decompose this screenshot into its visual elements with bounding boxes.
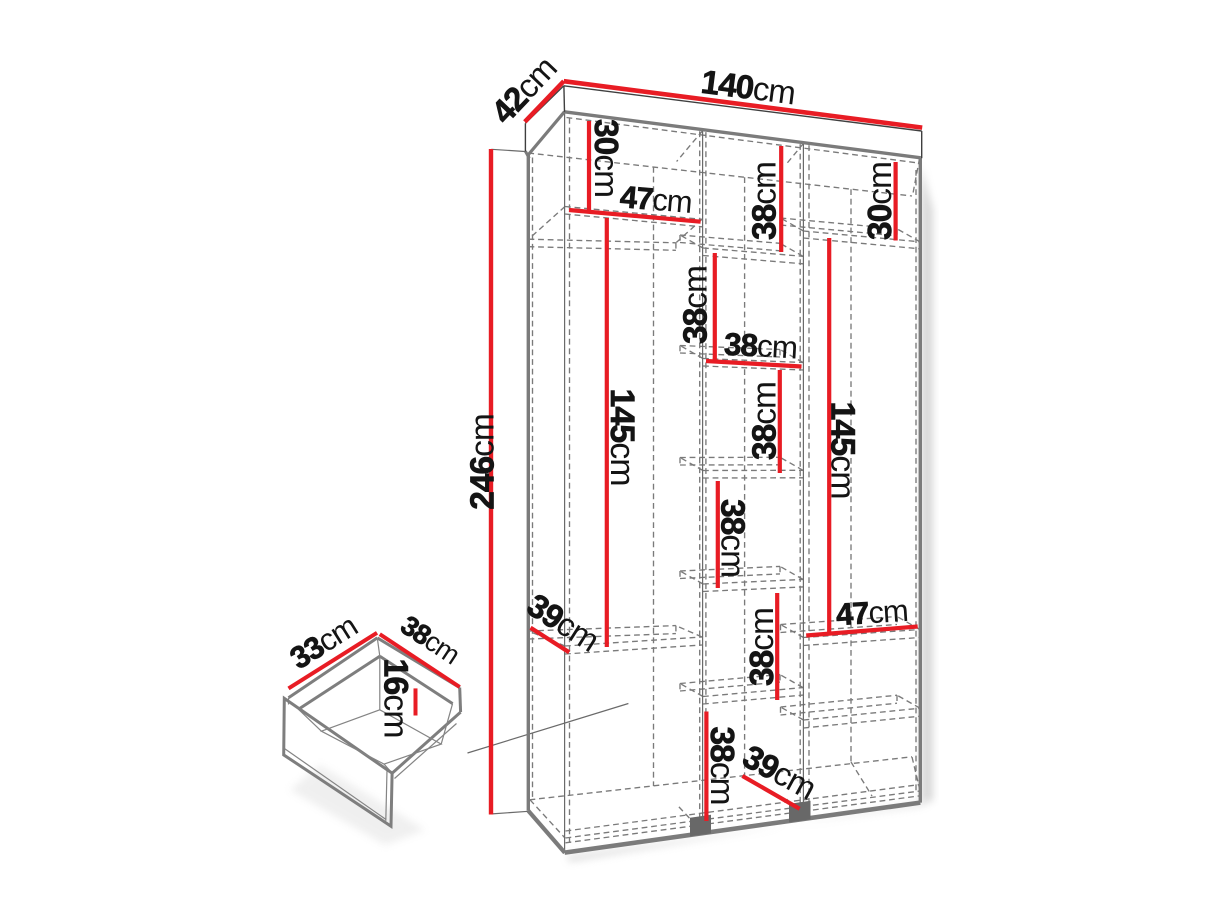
svg-text:47cm: 47cm: [619, 179, 693, 220]
svg-text:38cm: 38cm: [744, 608, 781, 686]
svg-text:145cm: 145cm: [824, 401, 862, 498]
svg-text:38cm: 38cm: [723, 326, 798, 366]
svg-text:38cm: 38cm: [703, 727, 740, 805]
svg-text:47cm: 47cm: [835, 593, 909, 632]
svg-text:145cm: 145cm: [603, 388, 641, 485]
svg-text:38cm: 38cm: [678, 266, 715, 344]
svg-text:16cm: 16cm: [377, 658, 415, 737]
svg-text:38cm: 38cm: [747, 162, 784, 240]
svg-text:38cm: 38cm: [747, 382, 784, 460]
svg-text:30cm: 30cm: [862, 162, 899, 240]
svg-text:30cm: 30cm: [587, 119, 624, 197]
svg-text:38cm: 38cm: [714, 499, 751, 577]
svg-text:246cm: 246cm: [465, 414, 502, 510]
